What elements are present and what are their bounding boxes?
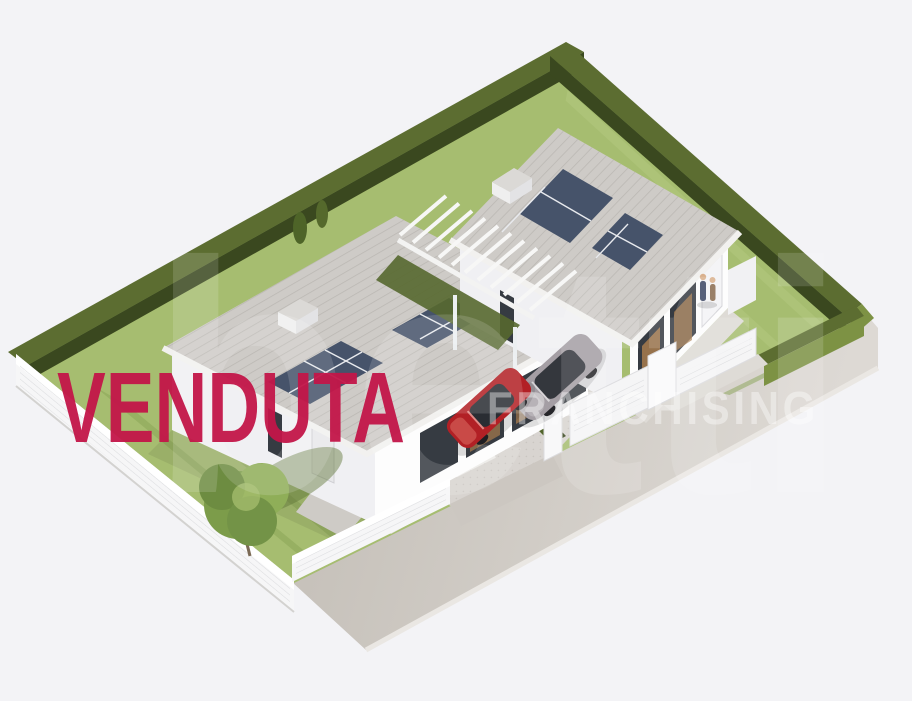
- franchising-watermark: FRANCHISING: [487, 382, 819, 434]
- listing-render-image: betti FRANCHISING VENDUTA: [0, 0, 912, 701]
- property-3d-render: betti FRANCHISING VENDUTA: [0, 0, 912, 701]
- sold-watermark: VENDUTA: [57, 352, 405, 464]
